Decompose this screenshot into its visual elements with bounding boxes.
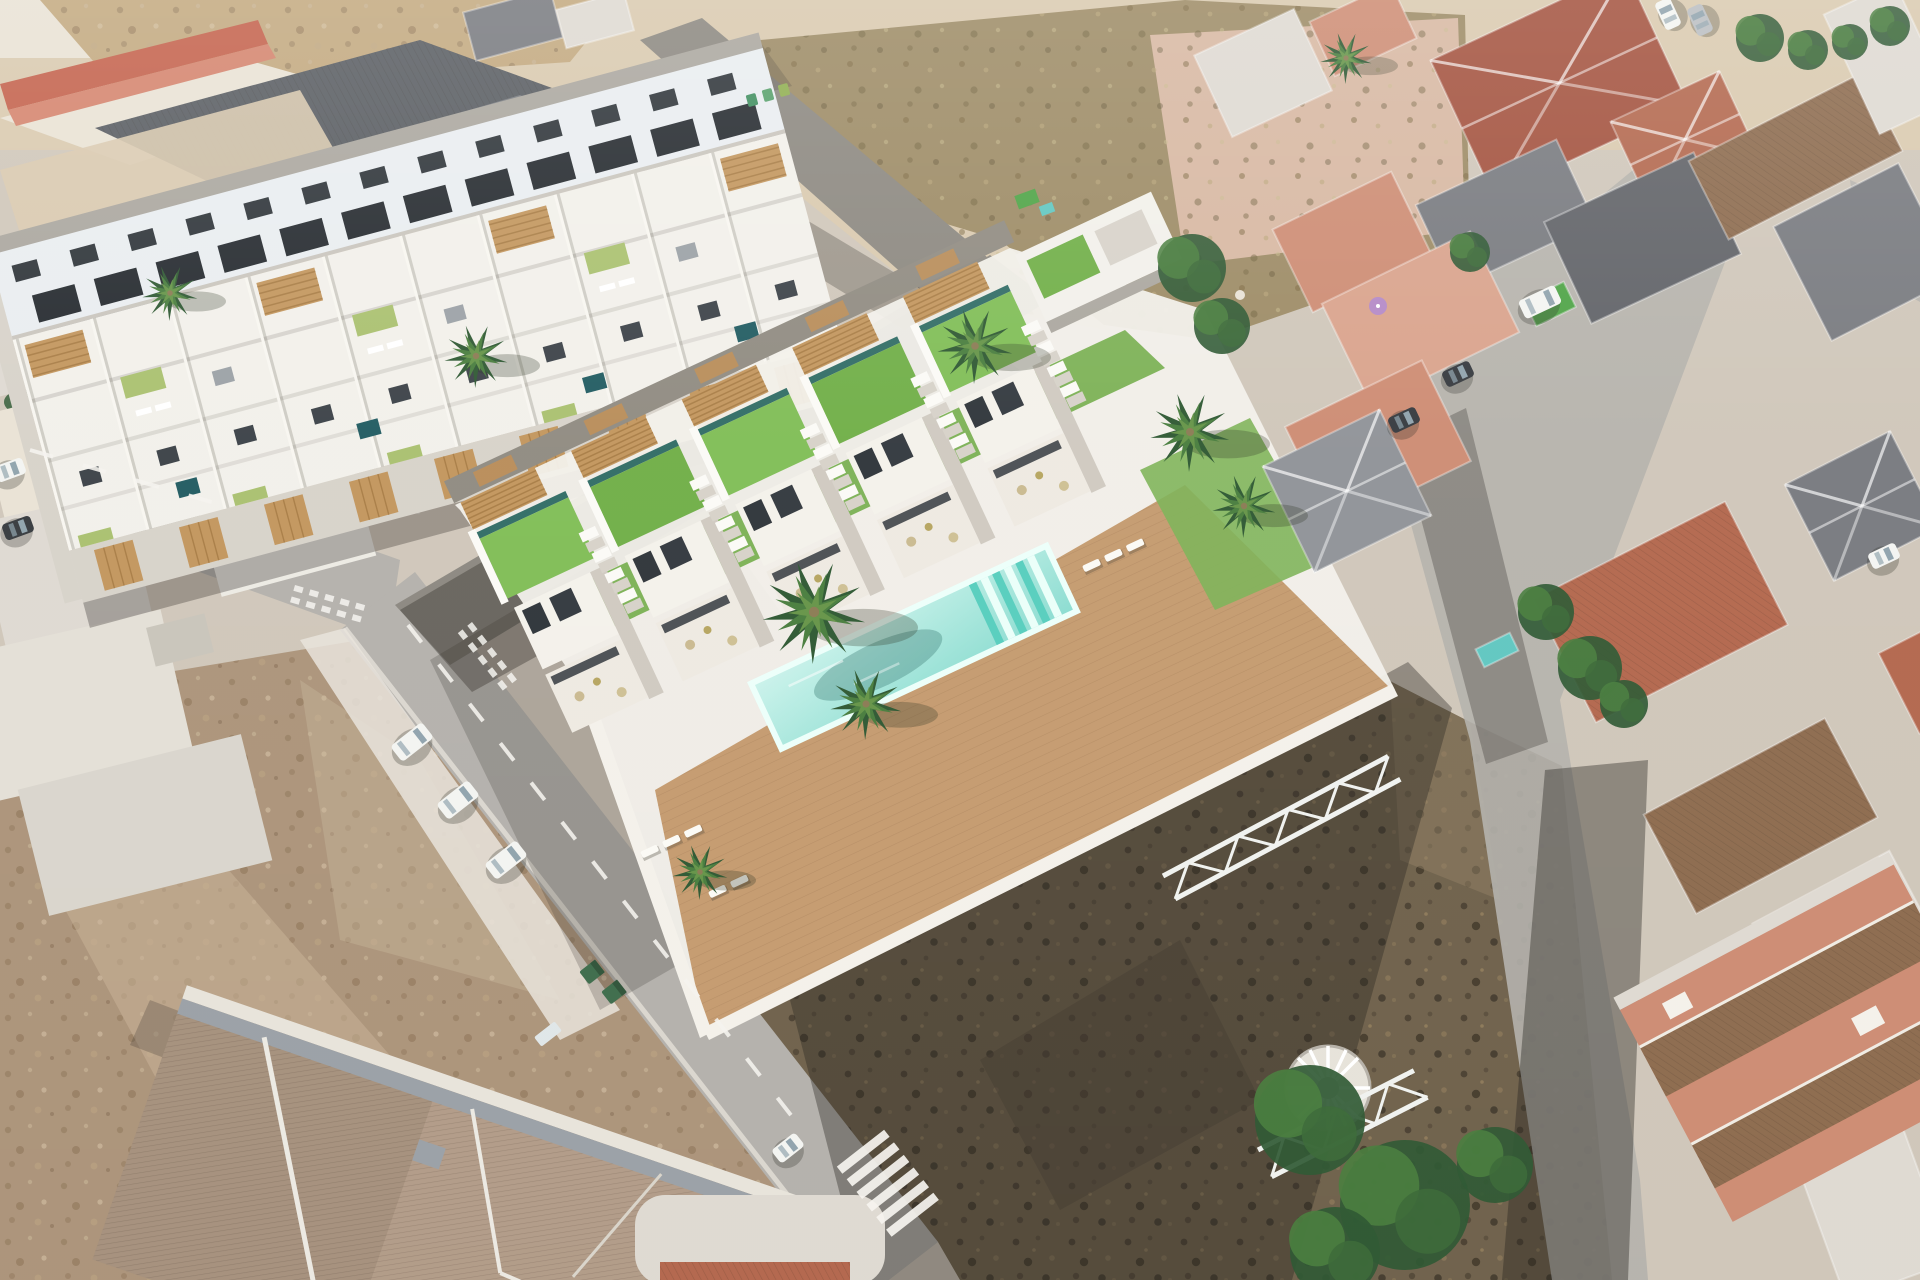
haze-overlay [0, 0, 1920, 1280]
aerial-scene [0, 0, 1920, 1280]
aerial-render-composite [0, 0, 1920, 1280]
